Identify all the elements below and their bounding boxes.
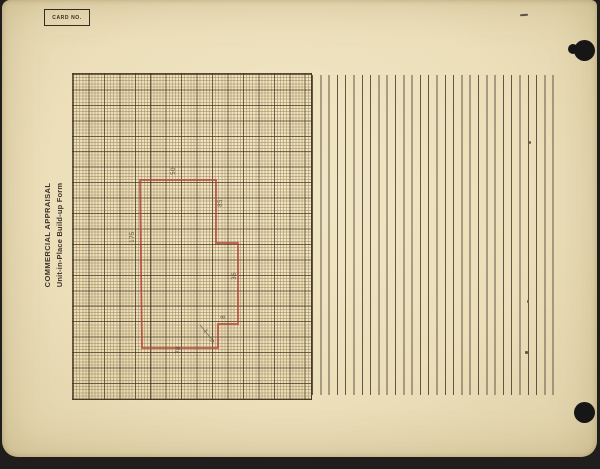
dimension-label-left: 175 bbox=[129, 231, 136, 243]
punch-hole-bottom bbox=[574, 402, 595, 423]
dimension-label-bottom: 78 bbox=[175, 346, 182, 354]
form-title: COMMERCIAL APPRAISAL Unit-in-Place Build… bbox=[34, 155, 74, 315]
title-unit-in-place: Unit-in-Place Build-up Form bbox=[54, 155, 66, 315]
scan-background: { "card": { "card_no_label": "CARD NO.",… bbox=[0, 0, 600, 469]
punch-hole-top-tab bbox=[568, 44, 578, 54]
building-sketch-svg: 50 85 36 8 78 175 bbox=[73, 74, 311, 399]
grid-paper: 50 85 36 8 78 175 bbox=[72, 73, 312, 400]
ruled-lines-section bbox=[312, 75, 554, 395]
title-commercial-appraisal: COMMERCIAL APPRAISAL bbox=[42, 155, 54, 315]
dimension-label-top: 50 bbox=[170, 167, 177, 175]
scan-speck bbox=[520, 14, 528, 16]
card-no-label: CARD NO. bbox=[52, 15, 82, 21]
scan-speck bbox=[525, 351, 528, 354]
scan-speck bbox=[529, 141, 531, 144]
card-no-box: CARD NO. bbox=[44, 9, 90, 26]
dimension-label-right-lower: 36 bbox=[231, 272, 238, 280]
dimension-label-right-upper: 85 bbox=[217, 199, 224, 207]
dimension-label-step: 8 bbox=[220, 315, 227, 319]
appraisal-card: CARD NO. COMMERCIAL APPRAISAL Unit-in-Pl… bbox=[2, 0, 597, 457]
scan-speck bbox=[527, 300, 529, 303]
pencil-arrow bbox=[200, 325, 214, 342]
